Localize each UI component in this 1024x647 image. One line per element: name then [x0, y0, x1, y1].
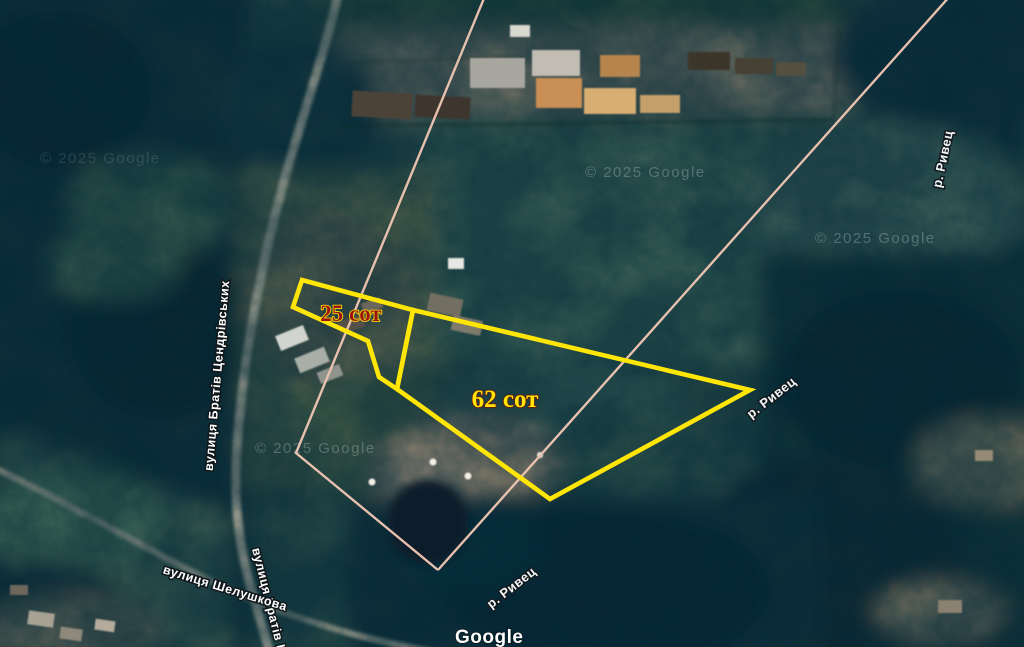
copyright-watermark-right: © 2025 Google — [815, 230, 936, 247]
google-logo[interactable]: Google — [455, 627, 523, 647]
satellite-map[interactable]: 25 сот 62 сот вулиця Братів Цендрівських… — [0, 0, 1024, 647]
copyright-watermark-center: © 2025 Google — [585, 164, 706, 181]
copyright-watermark-topleft: © 2025 Google — [40, 150, 161, 167]
map-canvas: 25 сот 62 сот вулиця Братів Цендрівських… — [0, 0, 1024, 647]
plot-25-area-label: 25 сот — [320, 301, 382, 326]
copyright-watermark-bottomleft: © 2025 Google — [255, 440, 376, 457]
plot-62-area-label: 62 сот — [472, 386, 539, 413]
fine-texture — [0, 0, 1024, 647]
